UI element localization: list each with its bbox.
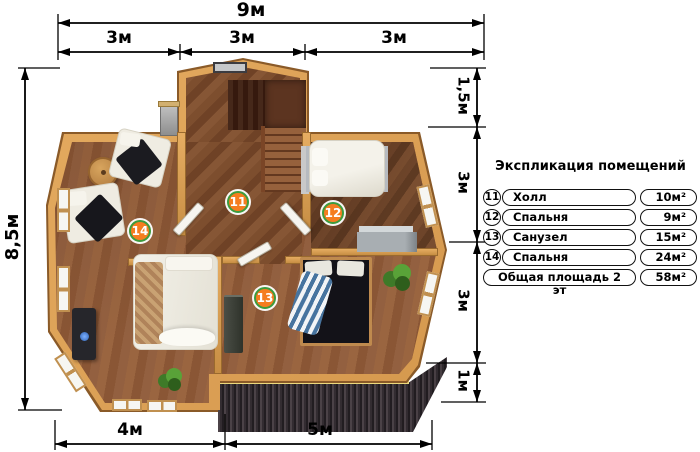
dim-right-seg-4: 1м (456, 357, 471, 405)
dim-left-height: 8,5м (4, 209, 22, 265)
dim-top-seg-2: 3м (220, 30, 264, 47)
dim-top-total: 9м (231, 1, 271, 20)
dimension-arrows (21, 19, 484, 448)
dim-right-seg-2: 3м (456, 159, 471, 207)
dim-top-seg-3: 3м (372, 30, 416, 47)
dim-right-seg-1: 1,5м (456, 72, 471, 120)
floor-plan-page: 11 12 13 14 9м 3м 3м 3м 8,5м 1,5м 3м 3м … (0, 0, 700, 452)
dimension-lines (0, 0, 700, 452)
dim-right-seg-3: 3м (456, 277, 471, 325)
dim-top-seg-1: 3м (97, 30, 141, 47)
dim-bottom-seg-1: 4м (108, 422, 152, 439)
dim-bottom-seg-2: 5м (298, 422, 342, 439)
